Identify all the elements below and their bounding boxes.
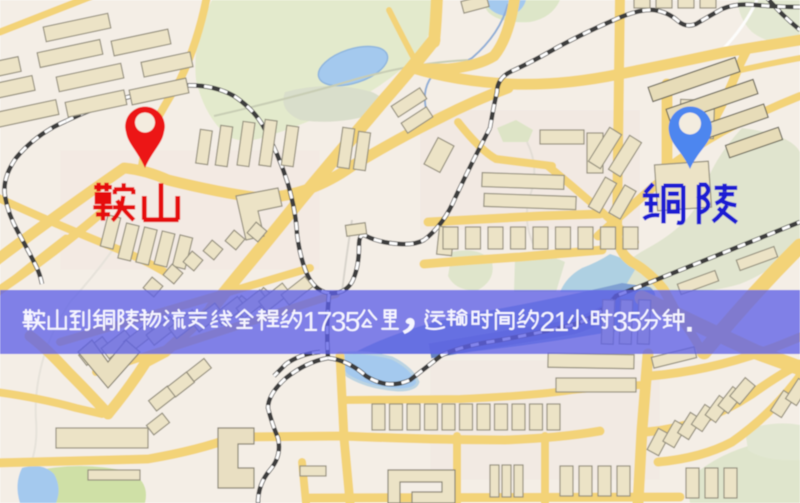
svg-text:35: 35 bbox=[612, 306, 641, 337]
svg-text:21: 21 bbox=[540, 306, 569, 337]
svg-text:1735: 1735 bbox=[303, 306, 360, 337]
